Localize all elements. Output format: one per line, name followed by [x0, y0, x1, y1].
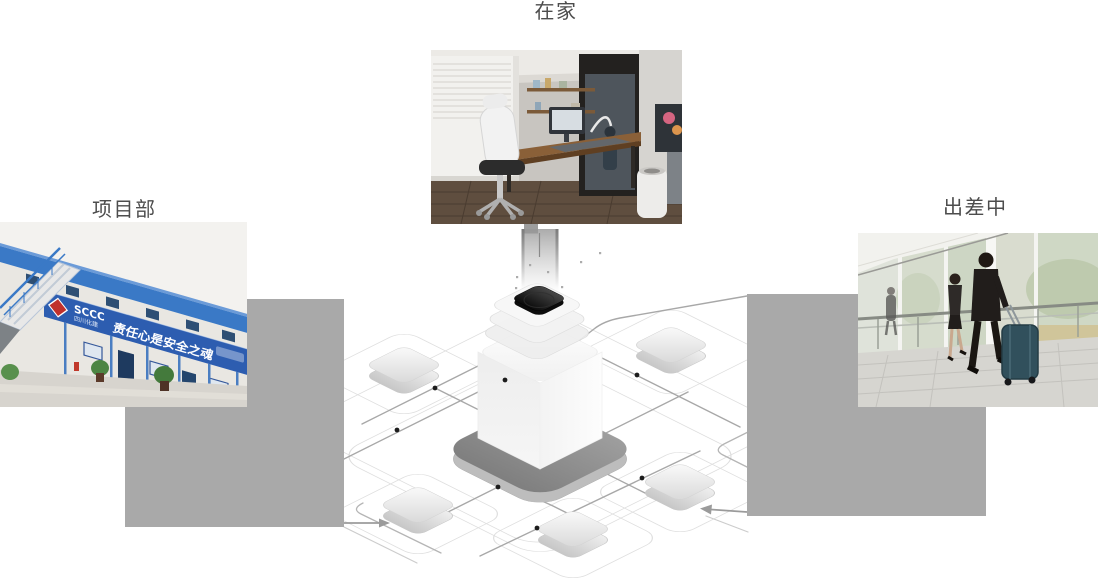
network-node-bottom-center	[534, 509, 612, 559]
label-trip: 出差中	[943, 196, 1008, 218]
home-office-photo	[431, 50, 682, 224]
arrow-left-icon	[700, 505, 712, 515]
network-node-lower-right	[641, 462, 719, 512]
label-home: 在家	[516, 0, 596, 22]
panel-connector-left	[344, 519, 390, 528]
fire-extinguisher	[74, 362, 79, 371]
project-site-photo: SCCC 四川化建 责任心是安全之魂	[0, 222, 247, 407]
scene-canvas: SCCC 四川化建 责任心是安全之魂	[0, 0, 1098, 582]
label-project: 项目部	[92, 198, 157, 220]
network-node-upper-left	[365, 345, 443, 395]
business-trip-photo	[858, 233, 1098, 407]
network-node-upper-right	[632, 325, 710, 375]
air-purifier	[637, 167, 667, 218]
hub-uplink-column	[515, 223, 601, 294]
